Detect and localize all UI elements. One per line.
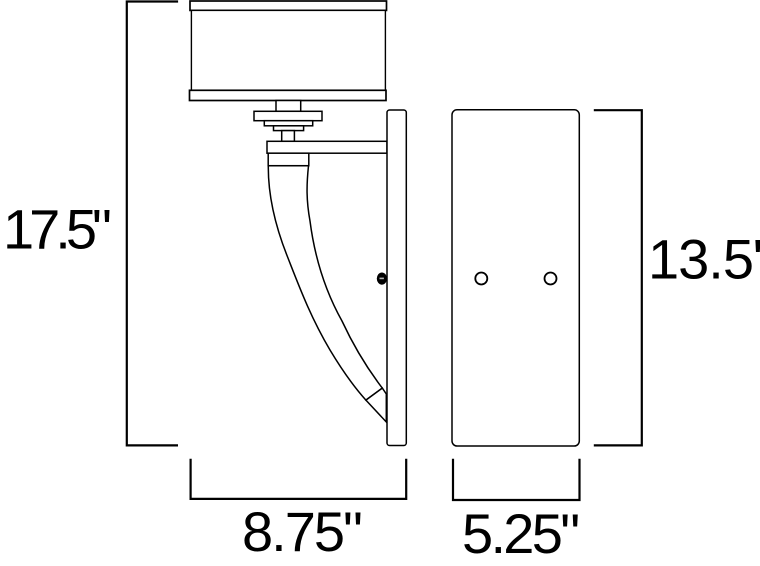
svg-text:17.5": 17.5" [3, 198, 110, 261]
svg-text:8.75": 8.75" [242, 500, 361, 563]
svg-text:13.5": 13.5" [648, 228, 760, 291]
svg-text:5.25": 5.25" [462, 502, 578, 565]
